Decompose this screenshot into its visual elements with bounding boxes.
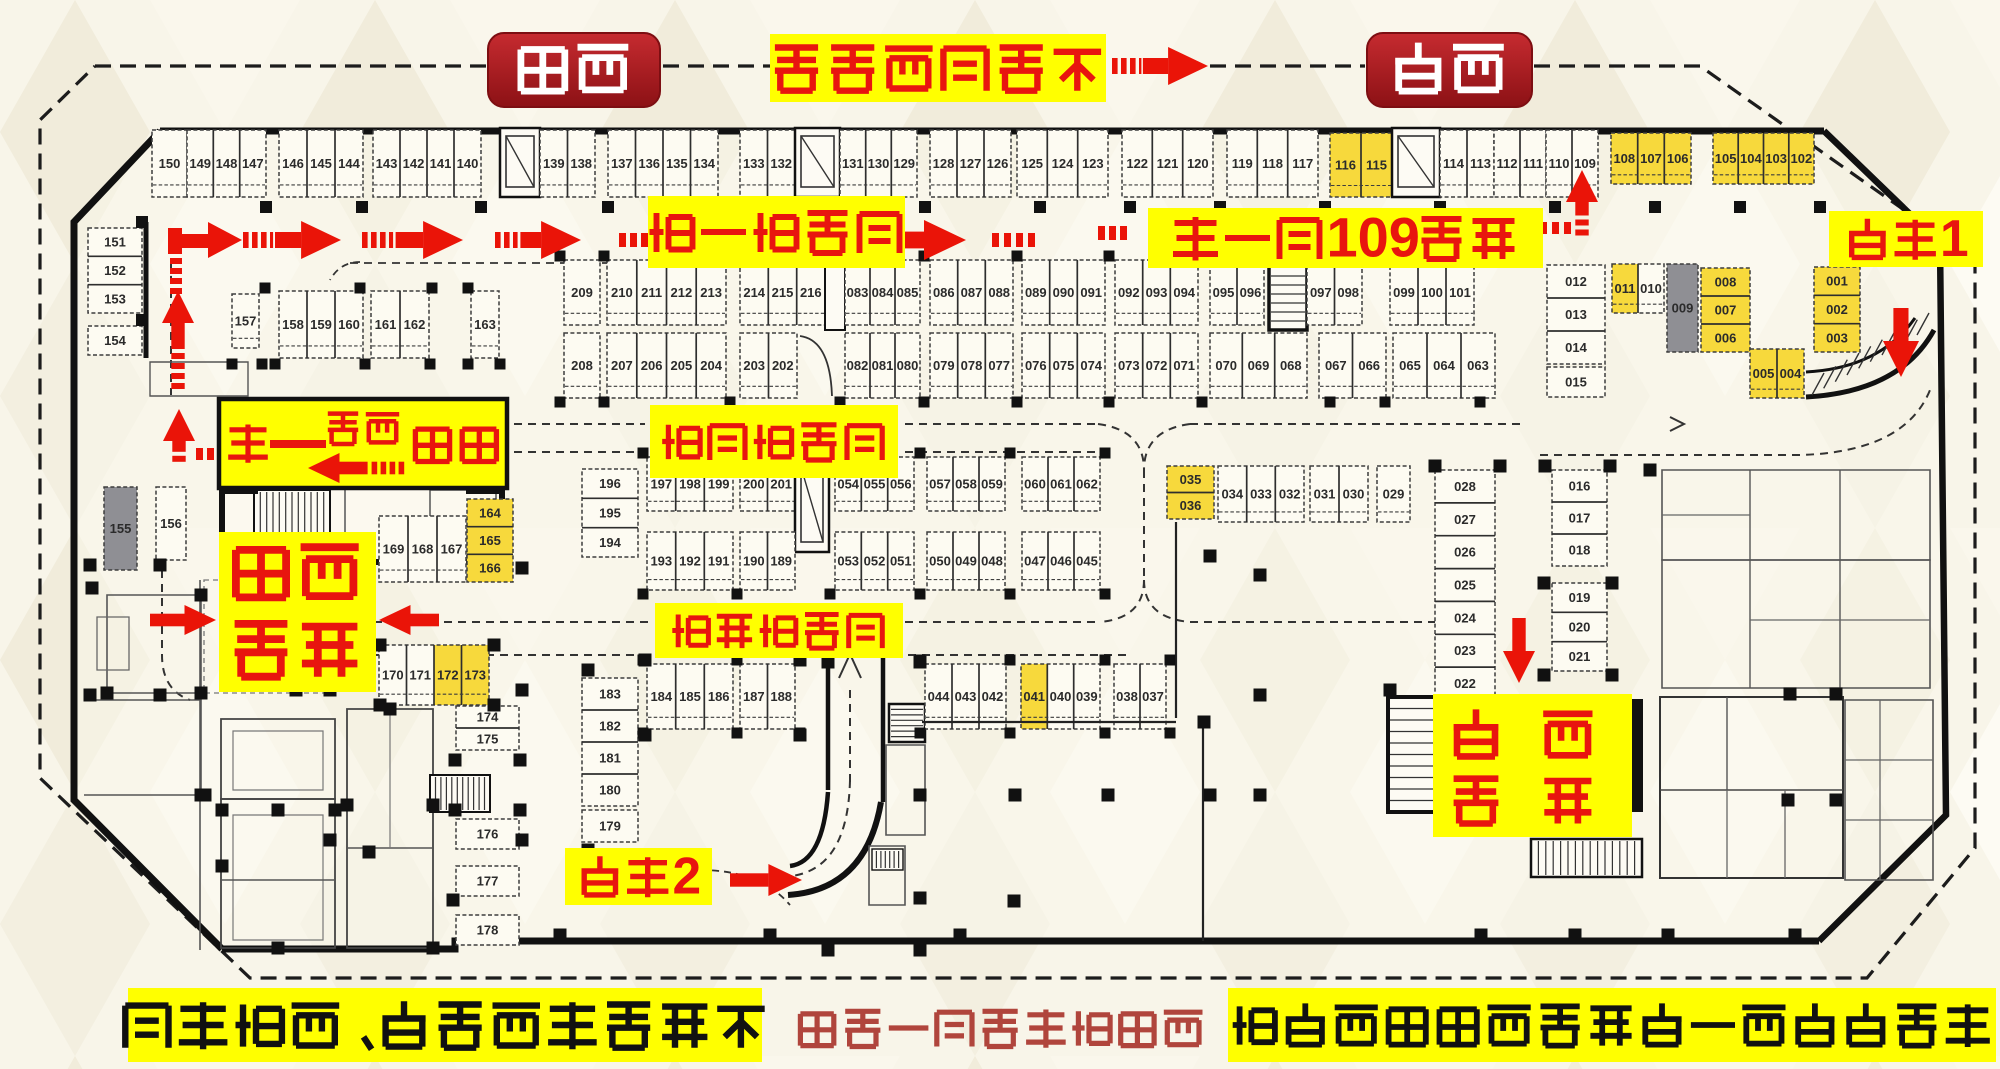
svg-text:025: 025 bbox=[1454, 578, 1476, 593]
svg-text:179: 179 bbox=[599, 819, 621, 834]
svg-text:203: 203 bbox=[743, 358, 765, 373]
svg-text:018: 018 bbox=[1569, 543, 1591, 558]
svg-text:051: 051 bbox=[890, 554, 912, 569]
svg-text:104: 104 bbox=[1740, 151, 1762, 166]
svg-text:171: 171 bbox=[409, 668, 431, 683]
svg-text:023: 023 bbox=[1454, 643, 1476, 658]
svg-text:136: 136 bbox=[638, 156, 660, 171]
svg-text:013: 013 bbox=[1565, 307, 1587, 322]
svg-text:211: 211 bbox=[641, 285, 662, 300]
svg-text:088: 088 bbox=[988, 285, 1010, 300]
svg-text:207: 207 bbox=[611, 358, 633, 373]
svg-text:024: 024 bbox=[1454, 610, 1476, 625]
svg-text:173: 173 bbox=[464, 668, 486, 683]
svg-text:147: 147 bbox=[242, 156, 264, 171]
svg-text:215: 215 bbox=[772, 285, 794, 300]
svg-text:151: 151 bbox=[104, 235, 126, 250]
svg-text:073: 073 bbox=[1118, 358, 1140, 373]
svg-text:166: 166 bbox=[479, 561, 501, 576]
svg-text:081: 081 bbox=[872, 358, 894, 373]
svg-text:149: 149 bbox=[189, 156, 211, 171]
svg-text:114: 114 bbox=[1443, 156, 1465, 171]
svg-text:145: 145 bbox=[310, 156, 332, 171]
svg-text:050: 050 bbox=[929, 554, 951, 569]
svg-text:036: 036 bbox=[1180, 498, 1202, 513]
svg-text:130: 130 bbox=[868, 156, 890, 171]
svg-text:098: 098 bbox=[1337, 285, 1359, 300]
svg-text:065: 065 bbox=[1399, 358, 1421, 373]
svg-text:032: 032 bbox=[1279, 487, 1301, 502]
svg-text:043: 043 bbox=[955, 689, 977, 704]
svg-text:155: 155 bbox=[110, 521, 132, 536]
svg-text:175: 175 bbox=[477, 732, 499, 747]
svg-text:131: 131 bbox=[842, 156, 864, 171]
svg-text:010: 010 bbox=[1640, 281, 1662, 296]
svg-text:033: 033 bbox=[1250, 487, 1272, 502]
svg-text:157: 157 bbox=[235, 314, 257, 329]
svg-text:129: 129 bbox=[893, 156, 915, 171]
svg-text:206: 206 bbox=[641, 358, 663, 373]
svg-text:150: 150 bbox=[159, 156, 181, 171]
svg-text:214: 214 bbox=[743, 285, 765, 300]
svg-text:212: 212 bbox=[671, 285, 693, 300]
svg-text:066: 066 bbox=[1358, 358, 1380, 373]
svg-text:120: 120 bbox=[1187, 156, 1209, 171]
svg-text:125: 125 bbox=[1021, 156, 1043, 171]
svg-text:141: 141 bbox=[430, 156, 452, 171]
svg-text:026: 026 bbox=[1454, 545, 1476, 560]
svg-text:099: 099 bbox=[1393, 285, 1415, 300]
svg-text:121: 121 bbox=[1157, 156, 1179, 171]
svg-text:028: 028 bbox=[1454, 479, 1476, 494]
svg-text:109: 109 bbox=[1327, 206, 1420, 269]
svg-text:213: 213 bbox=[700, 285, 722, 300]
svg-text:116: 116 bbox=[1335, 158, 1356, 173]
svg-text:106: 106 bbox=[1667, 151, 1689, 166]
svg-text:113: 113 bbox=[1470, 156, 1491, 171]
svg-text:005: 005 bbox=[1753, 366, 1775, 381]
svg-text:041: 041 bbox=[1023, 689, 1045, 704]
svg-text:059: 059 bbox=[981, 477, 1003, 492]
svg-text:183: 183 bbox=[599, 687, 621, 702]
svg-text:195: 195 bbox=[599, 506, 621, 521]
svg-text:140: 140 bbox=[457, 156, 479, 171]
svg-text:082: 082 bbox=[847, 358, 869, 373]
svg-text:085: 085 bbox=[897, 285, 919, 300]
svg-text:055: 055 bbox=[864, 477, 886, 492]
svg-text:174: 174 bbox=[477, 710, 499, 725]
svg-text:197: 197 bbox=[650, 477, 672, 492]
svg-text:090: 090 bbox=[1053, 285, 1075, 300]
svg-text:093: 093 bbox=[1146, 285, 1168, 300]
svg-text:108: 108 bbox=[1613, 151, 1635, 166]
svg-text:083: 083 bbox=[847, 285, 869, 300]
svg-text:053: 053 bbox=[837, 554, 859, 569]
svg-text:101: 101 bbox=[1449, 285, 1471, 300]
svg-text:146: 146 bbox=[282, 156, 304, 171]
svg-text:021: 021 bbox=[1569, 649, 1591, 664]
svg-text:123: 123 bbox=[1082, 156, 1104, 171]
svg-text:072: 072 bbox=[1146, 358, 1168, 373]
svg-text:079: 079 bbox=[933, 358, 955, 373]
svg-text:044: 044 bbox=[928, 689, 950, 704]
svg-text:198: 198 bbox=[679, 477, 701, 492]
svg-text:126: 126 bbox=[987, 156, 1009, 171]
svg-text:139: 139 bbox=[543, 156, 565, 171]
svg-text:124: 124 bbox=[1052, 156, 1074, 171]
svg-text:182: 182 bbox=[599, 719, 621, 734]
svg-text:014: 014 bbox=[1565, 340, 1587, 355]
svg-text:045: 045 bbox=[1076, 554, 1098, 569]
svg-text:196: 196 bbox=[599, 476, 621, 491]
svg-text:011: 011 bbox=[1615, 281, 1636, 296]
svg-text:186: 186 bbox=[708, 689, 730, 704]
svg-text:027: 027 bbox=[1454, 512, 1476, 527]
svg-text:119: 119 bbox=[1232, 156, 1253, 171]
svg-text:034: 034 bbox=[1221, 487, 1243, 502]
svg-text:177: 177 bbox=[477, 874, 499, 889]
svg-text:064: 064 bbox=[1433, 358, 1455, 373]
svg-text:110: 110 bbox=[1549, 156, 1570, 171]
svg-text:030: 030 bbox=[1343, 487, 1365, 502]
svg-text:037: 037 bbox=[1142, 689, 1164, 704]
svg-text:017: 017 bbox=[1569, 511, 1591, 526]
svg-text:015: 015 bbox=[1565, 375, 1587, 390]
svg-text:077: 077 bbox=[988, 358, 1010, 373]
svg-text:094: 094 bbox=[1173, 285, 1195, 300]
svg-text:159: 159 bbox=[310, 317, 332, 332]
svg-text:168: 168 bbox=[412, 542, 434, 557]
svg-text:084: 084 bbox=[872, 285, 894, 300]
svg-text:138: 138 bbox=[570, 156, 592, 171]
svg-text:208: 208 bbox=[571, 358, 593, 373]
svg-text:020: 020 bbox=[1569, 620, 1591, 635]
svg-text:092: 092 bbox=[1118, 285, 1140, 300]
svg-text:019: 019 bbox=[1569, 590, 1591, 605]
svg-text:075: 075 bbox=[1053, 358, 1075, 373]
svg-text:068: 068 bbox=[1280, 358, 1302, 373]
svg-text:040: 040 bbox=[1050, 689, 1072, 704]
svg-text:086: 086 bbox=[933, 285, 955, 300]
svg-text:089: 089 bbox=[1025, 285, 1047, 300]
svg-text:190: 190 bbox=[743, 554, 765, 569]
svg-text:2: 2 bbox=[673, 847, 702, 905]
svg-text:210: 210 bbox=[611, 285, 633, 300]
svg-text:038: 038 bbox=[1116, 689, 1138, 704]
svg-text:144: 144 bbox=[338, 156, 360, 171]
svg-text:022: 022 bbox=[1454, 676, 1476, 691]
svg-text:031: 031 bbox=[1314, 487, 1336, 502]
svg-text:164: 164 bbox=[479, 505, 501, 520]
svg-text:054: 054 bbox=[837, 477, 859, 492]
svg-text:080: 080 bbox=[897, 358, 919, 373]
svg-text:047: 047 bbox=[1024, 554, 1046, 569]
svg-text:061: 061 bbox=[1050, 477, 1072, 492]
svg-text:1: 1 bbox=[1940, 209, 1969, 267]
svg-text:181: 181 bbox=[599, 751, 621, 766]
svg-text:201: 201 bbox=[770, 477, 792, 492]
svg-text:063: 063 bbox=[1467, 358, 1489, 373]
svg-text:069: 069 bbox=[1248, 358, 1270, 373]
svg-text:103: 103 bbox=[1765, 151, 1787, 166]
svg-text:039: 039 bbox=[1076, 689, 1098, 704]
svg-text:160: 160 bbox=[338, 317, 360, 332]
svg-text:107: 107 bbox=[1640, 151, 1662, 166]
svg-text:176: 176 bbox=[477, 827, 499, 842]
svg-text:163: 163 bbox=[474, 317, 496, 332]
svg-text:008: 008 bbox=[1715, 275, 1737, 290]
svg-text:095: 095 bbox=[1213, 285, 1235, 300]
svg-text:142: 142 bbox=[403, 156, 425, 171]
svg-text:191: 191 bbox=[708, 554, 730, 569]
svg-text:058: 058 bbox=[955, 477, 977, 492]
svg-text:178: 178 bbox=[477, 923, 499, 938]
svg-text:052: 052 bbox=[864, 554, 886, 569]
svg-text:056: 056 bbox=[890, 477, 912, 492]
svg-text:016: 016 bbox=[1569, 479, 1591, 494]
svg-text:158: 158 bbox=[282, 317, 304, 332]
svg-text:035: 035 bbox=[1180, 472, 1202, 487]
svg-text:133: 133 bbox=[743, 156, 765, 171]
svg-text:134: 134 bbox=[693, 156, 715, 171]
svg-text:184: 184 bbox=[650, 689, 672, 704]
svg-text:180: 180 bbox=[599, 783, 621, 798]
svg-text:105: 105 bbox=[1715, 151, 1737, 166]
svg-text:096: 096 bbox=[1240, 285, 1262, 300]
svg-text:109: 109 bbox=[1574, 156, 1596, 171]
svg-text:169: 169 bbox=[383, 542, 405, 557]
svg-text:216: 216 bbox=[800, 285, 822, 300]
svg-text:070: 070 bbox=[1215, 358, 1237, 373]
svg-text:007: 007 bbox=[1715, 303, 1737, 318]
svg-text:161: 161 bbox=[375, 317, 397, 332]
svg-text:143: 143 bbox=[376, 156, 398, 171]
svg-text:127: 127 bbox=[960, 156, 982, 171]
svg-text:029: 029 bbox=[1383, 487, 1405, 502]
svg-text:194: 194 bbox=[599, 535, 621, 550]
svg-text:100: 100 bbox=[1421, 285, 1443, 300]
svg-text:009: 009 bbox=[1672, 301, 1694, 316]
svg-text:076: 076 bbox=[1025, 358, 1047, 373]
svg-text:001: 001 bbox=[1826, 274, 1848, 289]
svg-text:004: 004 bbox=[1780, 366, 1802, 381]
svg-text:097: 097 bbox=[1310, 285, 1332, 300]
svg-text:156: 156 bbox=[160, 516, 182, 531]
svg-text:071: 071 bbox=[1173, 358, 1195, 373]
svg-text:006: 006 bbox=[1715, 331, 1737, 346]
svg-text:193: 193 bbox=[650, 554, 672, 569]
svg-text:046: 046 bbox=[1050, 554, 1072, 569]
svg-text:078: 078 bbox=[961, 358, 983, 373]
svg-text:192: 192 bbox=[679, 554, 701, 569]
svg-text:074: 074 bbox=[1080, 358, 1102, 373]
svg-text:187: 187 bbox=[743, 689, 765, 704]
svg-text:205: 205 bbox=[671, 358, 693, 373]
svg-text:062: 062 bbox=[1076, 477, 1098, 492]
svg-text:122: 122 bbox=[1126, 156, 1148, 171]
svg-text:135: 135 bbox=[666, 156, 688, 171]
svg-text:167: 167 bbox=[441, 542, 463, 557]
svg-text:048: 048 bbox=[981, 554, 1003, 569]
svg-text:042: 042 bbox=[982, 689, 1004, 704]
svg-text:165: 165 bbox=[479, 533, 501, 548]
svg-text:057: 057 bbox=[929, 477, 951, 492]
svg-text:060: 060 bbox=[1024, 477, 1046, 492]
svg-text:117: 117 bbox=[1292, 156, 1313, 171]
svg-text:153: 153 bbox=[104, 291, 126, 306]
svg-text:185: 185 bbox=[679, 689, 701, 704]
svg-text:002: 002 bbox=[1826, 302, 1848, 317]
svg-text:003: 003 bbox=[1826, 330, 1848, 345]
svg-text:152: 152 bbox=[104, 263, 126, 278]
svg-text:102: 102 bbox=[1791, 151, 1813, 166]
svg-text:091: 091 bbox=[1080, 285, 1102, 300]
svg-text:049: 049 bbox=[955, 554, 977, 569]
svg-text:204: 204 bbox=[700, 358, 722, 373]
svg-text:189: 189 bbox=[770, 554, 792, 569]
svg-text:132: 132 bbox=[770, 156, 792, 171]
svg-text:162: 162 bbox=[404, 317, 426, 332]
svg-text:012: 012 bbox=[1565, 274, 1587, 289]
svg-text:148: 148 bbox=[216, 156, 238, 171]
svg-text:172: 172 bbox=[437, 668, 459, 683]
svg-text:128: 128 bbox=[933, 156, 955, 171]
svg-text:137: 137 bbox=[611, 156, 633, 171]
svg-text:112: 112 bbox=[1497, 156, 1518, 171]
svg-text:111: 111 bbox=[1523, 156, 1543, 171]
svg-text:200: 200 bbox=[743, 477, 765, 492]
svg-text:067: 067 bbox=[1325, 358, 1347, 373]
svg-text:154: 154 bbox=[104, 333, 126, 348]
svg-text:199: 199 bbox=[708, 477, 730, 492]
svg-text:202: 202 bbox=[772, 358, 794, 373]
svg-text:188: 188 bbox=[770, 689, 792, 704]
svg-text:087: 087 bbox=[961, 285, 983, 300]
svg-text:209: 209 bbox=[571, 285, 593, 300]
svg-text:170: 170 bbox=[382, 668, 404, 683]
svg-text:118: 118 bbox=[1262, 156, 1283, 171]
svg-text:115: 115 bbox=[1366, 158, 1387, 173]
